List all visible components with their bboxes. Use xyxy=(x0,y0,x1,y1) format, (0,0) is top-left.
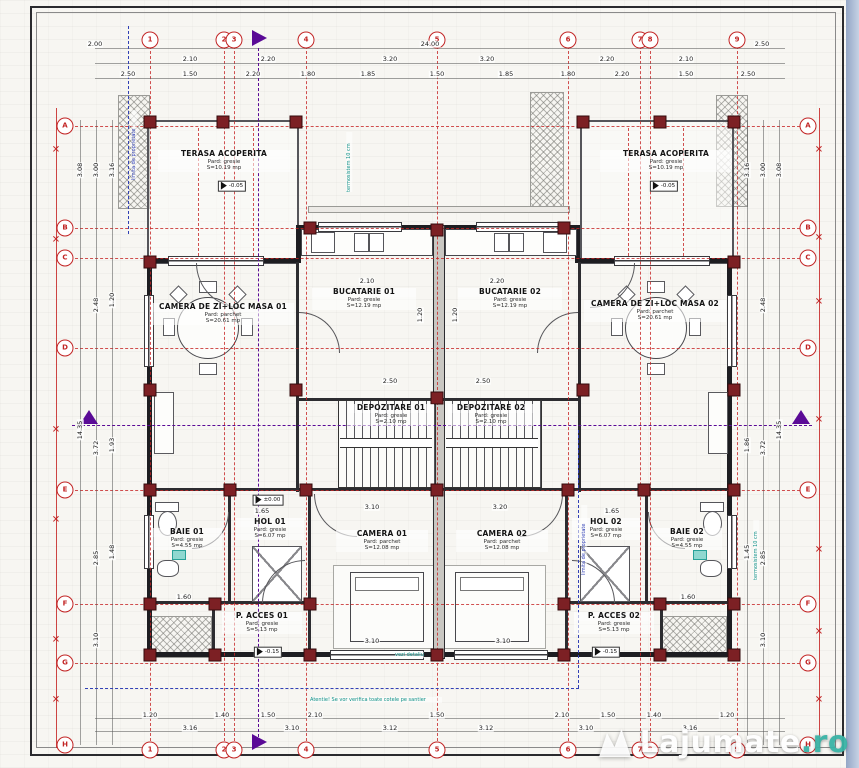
grid-bubble: 3 xyxy=(226,32,243,49)
stove xyxy=(543,232,567,253)
level-marker: -0.15 xyxy=(592,647,620,658)
x-mark-icon xyxy=(814,627,825,638)
x-mark-icon xyxy=(814,233,825,244)
grid-bubble: B xyxy=(57,220,74,237)
section-line-horizontal xyxy=(72,425,812,426)
level-marker: -0.05 xyxy=(218,181,246,192)
lajumate-logo-icon xyxy=(598,728,632,758)
dimension-value: 2.50 xyxy=(120,71,136,78)
dimension-value: 1.93 xyxy=(109,437,116,453)
structural-column xyxy=(728,649,741,662)
room-label: HOL 01 Pard: gresie S=6.07 mp xyxy=(236,518,304,540)
room-floor-finish: Pard: gresie xyxy=(652,537,722,544)
dimension-value: 3.20 xyxy=(492,504,508,511)
grid-bubble: G xyxy=(57,655,74,672)
dimension-value: 2.10 xyxy=(678,56,694,63)
grid-bubble: C xyxy=(57,250,74,267)
room-name: TERASA ACOPERITA xyxy=(600,150,732,159)
dimension-value: 3.08 xyxy=(776,162,783,178)
dimension-value: 3.12 xyxy=(478,725,494,732)
dimension-value: 3.00 xyxy=(760,162,767,178)
structural-column xyxy=(654,598,667,611)
room-area: S=5.13 mp xyxy=(574,627,654,634)
axis-line-horizontal xyxy=(70,604,800,605)
axis-line-horizontal xyxy=(70,663,800,664)
structural-column xyxy=(728,598,741,611)
level-marker: -0.05 xyxy=(650,181,678,192)
dimension-value: 2.50 xyxy=(382,378,398,385)
interior-wall xyxy=(296,262,299,492)
dimension-value: 3.72 xyxy=(93,440,100,456)
room-label: TERASA ACOPERITA Pard: gresie S=10.19 mp xyxy=(600,150,732,172)
dimension-value: 2.20 xyxy=(614,71,630,78)
structural-column xyxy=(577,116,590,129)
dimension-value: 2.50 xyxy=(475,378,491,385)
scan-edge xyxy=(846,0,859,768)
dimension-value: 2.50 xyxy=(740,71,756,78)
dimension-value: 1.48 xyxy=(109,544,116,560)
x-mark-icon xyxy=(51,235,62,246)
dimension-value: 1.20 xyxy=(452,307,459,323)
dimension-value: 2.10 xyxy=(359,278,375,285)
room-label: P. ACCES 01 Pard: gresie S=5.13 mp xyxy=(222,612,302,634)
x-mark-icon xyxy=(814,145,825,156)
room-name: CAMERA DE ZI+LOC MASA 01 xyxy=(152,303,294,312)
room-name: HOL 01 xyxy=(236,518,304,527)
window xyxy=(476,222,560,232)
dimension-value: 1.60 xyxy=(680,594,696,601)
axis-line-horizontal xyxy=(70,258,800,259)
room-floor-finish: Pard: gresie xyxy=(222,621,302,628)
dimension-value: 1.20 xyxy=(142,712,158,719)
dimension-value: 1.80 xyxy=(560,71,576,78)
room-name: CAMERA 01 xyxy=(336,530,428,539)
watermark-text: Lajumate.ro xyxy=(639,725,849,760)
dimension-value: 2.48 xyxy=(93,297,100,313)
grid-bubble: D xyxy=(800,340,817,357)
room-area: S=2.10 mp xyxy=(448,419,534,426)
grid-bubble: H xyxy=(57,737,74,754)
grid-bubble: 4 xyxy=(298,742,315,759)
room-floor-finish: Pard: gresie xyxy=(158,159,290,166)
room-area: S=20.61 mp xyxy=(152,318,294,325)
dimension-value: 1.50 xyxy=(260,712,276,719)
x-mark-icon xyxy=(814,415,825,426)
interior-wall xyxy=(308,490,311,657)
dimension-value: 2.85 xyxy=(93,550,100,566)
structural-column xyxy=(728,384,741,397)
dimension-value: 3.16 xyxy=(744,162,751,178)
dimension-value: 3.10 xyxy=(93,632,100,648)
dimension-value: 3.10 xyxy=(284,725,300,732)
x-mark-icon xyxy=(51,695,62,706)
window xyxy=(727,295,737,367)
structural-column xyxy=(638,484,651,497)
room-area: S=2.10 mp xyxy=(348,419,434,426)
grid-bubble: 6 xyxy=(560,32,577,49)
dim-line xyxy=(95,78,785,79)
sofa xyxy=(154,392,174,454)
stove xyxy=(311,232,335,253)
grid-bubble: E xyxy=(57,482,74,499)
room-area: S=20.61 mp xyxy=(584,315,726,322)
room-name: P. ACCES 02 xyxy=(574,612,654,621)
annotation-note: termosistem 10 cm xyxy=(346,132,352,192)
kitchen-sink xyxy=(354,233,369,252)
grid-bubble: D xyxy=(57,340,74,357)
window xyxy=(727,515,737,569)
grid-bubble: 8 xyxy=(642,32,659,49)
dimension-value: 1.65 xyxy=(604,508,620,515)
pillow xyxy=(460,577,524,591)
terrace-outline xyxy=(580,120,734,264)
interior-wall xyxy=(228,490,231,604)
axis-line-horizontal xyxy=(70,126,800,127)
structural-column xyxy=(304,649,317,662)
structural-column xyxy=(577,384,590,397)
room-floor-finish: Pard: gresie xyxy=(448,413,534,420)
level-marker: ±0.00 xyxy=(253,495,284,506)
setback-line-right xyxy=(819,108,820,748)
room-label: BUCATARIE 02 Pard: gresie S=12.19 mp xyxy=(458,288,562,310)
room-floor-finish: Pard: parchet xyxy=(336,539,428,546)
structural-column xyxy=(431,649,444,662)
shower-tray xyxy=(693,550,707,560)
room-area: S=5.13 mp xyxy=(222,627,302,634)
floor-plan-sheet: 123456789 123456789 ABCDEFGH ABCDEFGH 2.… xyxy=(0,0,859,768)
axis-line-vertical xyxy=(683,128,684,256)
grid-bubble: E xyxy=(800,482,817,499)
x-mark-icon xyxy=(814,545,825,556)
room-area: S=12.19 mp xyxy=(312,303,416,310)
x-mark-icon xyxy=(51,425,62,436)
dimension-value: 1.60 xyxy=(176,594,192,601)
structural-column xyxy=(290,116,303,129)
grid-bubble: C xyxy=(800,250,817,267)
grid-bubble: F xyxy=(800,596,817,613)
sofa xyxy=(708,392,728,454)
grid-bubble: 1 xyxy=(142,742,159,759)
interior-wall xyxy=(660,604,663,655)
eave-line xyxy=(308,206,570,213)
dimension-value: 1.50 xyxy=(678,71,694,78)
dim-line xyxy=(96,120,97,745)
grid-bubble: B xyxy=(800,220,817,237)
structural-column xyxy=(654,116,667,129)
bed xyxy=(455,572,529,642)
room-floor-finish: Pard: parchet xyxy=(456,539,548,546)
room-label: P. ACCES 02 Pard: gresie S=5.13 mp xyxy=(574,612,654,634)
dimension-value: 3.10 xyxy=(760,632,767,648)
dimension-value: 3.16 xyxy=(182,725,198,732)
room-label: CAMERA 02 Pard: parchet S=12.08 mp xyxy=(456,530,548,552)
room-name: CAMERA DE ZI+LOC MASA 02 xyxy=(584,300,726,309)
structural-column xyxy=(144,649,157,662)
structural-column xyxy=(558,649,571,662)
axis-line-vertical xyxy=(306,46,307,746)
dimension-value: 3.10 xyxy=(364,638,380,645)
dimension-value: 1.85 xyxy=(498,71,514,78)
room-label: CAMERA 01 Pard: parchet S=12.08 mp xyxy=(336,530,428,552)
dimension-value: 2.20 xyxy=(245,71,261,78)
structural-column xyxy=(654,649,667,662)
room-label: BAIE 02 Pard: gresie S=4.55 mp xyxy=(652,528,722,550)
dimension-value: 2.10 xyxy=(554,712,570,719)
property-line xyxy=(85,688,579,689)
room-name: BAIE 01 xyxy=(152,528,222,537)
structural-column xyxy=(562,484,575,497)
dimension-value: 1.40 xyxy=(646,712,662,719)
dimension-value: 3.08 xyxy=(77,162,84,178)
room-label: CAMERA DE ZI+LOC MASA 01 Pard: parchet S… xyxy=(152,303,294,325)
dimension-value: 14.35 xyxy=(776,420,783,441)
x-mark-icon xyxy=(51,635,62,646)
window xyxy=(318,222,402,232)
chair xyxy=(199,363,217,375)
room-area: S=10.19 mp xyxy=(600,165,732,172)
room-label: BAIE 01 Pard: gresie S=4.55 mp xyxy=(152,528,222,550)
room-label: CAMERA DE ZI+LOC MASA 02 Pard: parchet S… xyxy=(584,300,726,322)
dimension-value: 3.10 xyxy=(578,725,594,732)
room-area: S=12.19 mp xyxy=(458,303,562,310)
dim-line xyxy=(95,48,785,49)
x-mark-icon xyxy=(51,515,62,526)
structural-column xyxy=(300,484,313,497)
room-floor-finish: Pard: gresie xyxy=(348,413,434,420)
room-floor-finish: Pard: gresie xyxy=(600,159,732,166)
room-label: DEPOZITARE 02 Pard: gresie S=2.10 mp xyxy=(448,404,534,426)
dimension-value: 1.80 xyxy=(300,71,316,78)
dimension-value: 14.35 xyxy=(77,420,84,441)
masonry-hatch xyxy=(530,92,564,212)
property-line xyxy=(578,430,579,688)
structural-column xyxy=(224,484,237,497)
room-area: S=4.55 mp xyxy=(152,543,222,550)
room-label: BUCATARIE 01 Pard: gresie S=12.19 mp xyxy=(312,288,416,310)
watermark[interactable]: Lajumate.ro xyxy=(598,725,849,760)
interior-wall xyxy=(212,604,215,655)
room-floor-finish: Pard: gresie xyxy=(312,297,416,304)
window xyxy=(454,650,548,660)
dim-line xyxy=(95,63,785,64)
x-mark-icon xyxy=(814,297,825,308)
dimension-value: 2.85 xyxy=(760,550,767,566)
room-floor-finish: Pard: gresie xyxy=(458,297,562,304)
room-floor-finish: Pard: gresie xyxy=(152,537,222,544)
structural-column xyxy=(144,484,157,497)
dimension-value: 2.20 xyxy=(489,278,505,285)
grid-bubble: 9 xyxy=(729,32,746,49)
dimension-value: 1.50 xyxy=(429,712,445,719)
room-area: S=12.08 mp xyxy=(456,545,548,552)
dimension-value: 2.10 xyxy=(307,712,323,719)
grid-bubble: A xyxy=(57,118,74,135)
room-name: BUCATARIE 02 xyxy=(458,288,562,297)
room-name: DEPOZITARE 02 xyxy=(448,404,534,413)
stair-rail xyxy=(340,438,432,448)
room-floor-finish: Pard: gresie xyxy=(236,527,304,534)
stair-rail xyxy=(446,438,538,448)
grid-bubble: 6 xyxy=(560,742,577,759)
room-name: CAMERA 02 xyxy=(456,530,548,539)
structural-column xyxy=(217,116,230,129)
dimension-value: 3.20 xyxy=(382,56,398,63)
annotation-note: limita de proprietate xyxy=(131,110,137,180)
axis-line-vertical xyxy=(568,46,569,746)
structural-column xyxy=(209,598,222,611)
structural-column xyxy=(431,484,444,497)
grid-bubble: A xyxy=(800,118,817,135)
axis-line-horizontal xyxy=(70,348,800,349)
room-name: BAIE 02 xyxy=(652,528,722,537)
annotation-note: Atentie! Se vor verifica toate cotele pe… xyxy=(310,697,442,703)
room-name: TERASA ACOPERITA xyxy=(158,150,290,159)
x-mark-icon xyxy=(51,145,62,156)
section-marker-icon xyxy=(252,30,267,46)
room-area: S=4.55 mp xyxy=(652,543,722,550)
dimension-value: 1.20 xyxy=(719,712,735,719)
dimension-value: 1.50 xyxy=(182,71,198,78)
structural-column xyxy=(431,224,444,237)
grid-bubble: 3 xyxy=(226,742,243,759)
grid-bubble: G xyxy=(800,655,817,672)
grid-bubble: 1 xyxy=(142,32,159,49)
structural-column xyxy=(728,256,741,269)
room-name: P. ACCES 01 xyxy=(222,612,302,621)
dim-line xyxy=(747,120,748,745)
structural-column xyxy=(558,598,571,611)
dimension-value: 2.10 xyxy=(182,56,198,63)
room-name: BUCATARIE 01 xyxy=(312,288,416,297)
interior-wall xyxy=(645,490,648,604)
structural-column xyxy=(728,484,741,497)
structural-column xyxy=(290,384,303,397)
dimension-value: 3.10 xyxy=(364,504,380,511)
structural-column xyxy=(144,256,157,269)
room-name: DEPOZITARE 01 xyxy=(348,404,434,413)
dimension-value: 2.20 xyxy=(260,56,276,63)
grid-bubble: 5 xyxy=(429,742,446,759)
kitchen-sink xyxy=(494,233,509,252)
dimension-value: 2.48 xyxy=(760,297,767,313)
dimension-value: 1.86 xyxy=(744,437,751,453)
grid-bubble: F xyxy=(57,596,74,613)
axis-line-vertical xyxy=(253,128,254,256)
structural-column xyxy=(728,116,741,129)
room-label: TERASA ACOPERITA Pard: gresie S=10.19 mp xyxy=(158,150,290,172)
x-mark-icon xyxy=(814,695,825,706)
dimension-value: 1.45 xyxy=(744,544,751,560)
structural-column xyxy=(558,222,571,235)
dimension-value: 3.20 xyxy=(479,56,495,63)
structural-column xyxy=(431,392,444,405)
dimension-value: 2.00 xyxy=(87,41,103,48)
dim-line xyxy=(112,120,113,745)
structural-column xyxy=(144,116,157,129)
dimension-value: 1.50 xyxy=(429,71,445,78)
grid-bubble: 4 xyxy=(298,32,315,49)
annotation-note: vezi detaliu xyxy=(395,652,424,658)
axis-line-vertical xyxy=(198,128,199,256)
terrace-outline xyxy=(147,120,299,264)
structural-column xyxy=(144,384,157,397)
structural-column xyxy=(304,598,317,611)
dim-line xyxy=(763,120,764,745)
dimension-value: 2.20 xyxy=(599,56,615,63)
structural-column xyxy=(304,222,317,235)
shower-tray xyxy=(172,550,186,560)
property-line xyxy=(128,26,129,234)
room-area: S=12.08 mp xyxy=(336,545,428,552)
dimension-value: 24.00 xyxy=(420,41,441,48)
kitchen-sink xyxy=(369,233,384,252)
room-label: DEPOZITARE 01 Pard: gresie S=2.10 mp xyxy=(348,404,434,426)
dimension-value: 3.12 xyxy=(382,725,398,732)
dimension-value: 1.85 xyxy=(360,71,376,78)
section-marker-icon xyxy=(792,410,810,424)
bath-sink xyxy=(157,560,179,577)
structural-column xyxy=(144,598,157,611)
kitchen-sink xyxy=(509,233,524,252)
dimension-value: 1.50 xyxy=(600,712,616,719)
dimension-value: 3.00 xyxy=(93,162,100,178)
dimension-value: 1.20 xyxy=(109,292,116,308)
room-floor-finish: Pard: gresie xyxy=(574,621,654,628)
dimension-value: 1.65 xyxy=(254,508,270,515)
structural-column xyxy=(209,649,222,662)
dimension-value: 3.72 xyxy=(760,440,767,456)
annotation-note: termosistem 10 cm xyxy=(753,520,759,580)
section-marker-icon xyxy=(252,734,267,750)
room-area: S=6.07 mp xyxy=(236,533,304,540)
bed xyxy=(350,572,424,642)
room-floor-finish: Pard: parchet xyxy=(152,312,294,319)
pillow xyxy=(355,577,419,591)
dimension-value: 3.10 xyxy=(495,638,511,645)
level-marker: -0.15 xyxy=(254,647,282,658)
dimension-value: 3.16 xyxy=(109,162,116,178)
axis-line-vertical xyxy=(628,128,629,256)
annotation-note: limita de proprietate xyxy=(581,505,587,575)
bath-sink xyxy=(700,560,722,577)
dimension-value: 2.50 xyxy=(754,41,770,48)
room-area: S=10.19 mp xyxy=(158,165,290,172)
room-floor-finish: Pard: parchet xyxy=(584,309,726,316)
dimension-value: 1.40 xyxy=(214,712,230,719)
dimension-value: 1.20 xyxy=(417,307,424,323)
